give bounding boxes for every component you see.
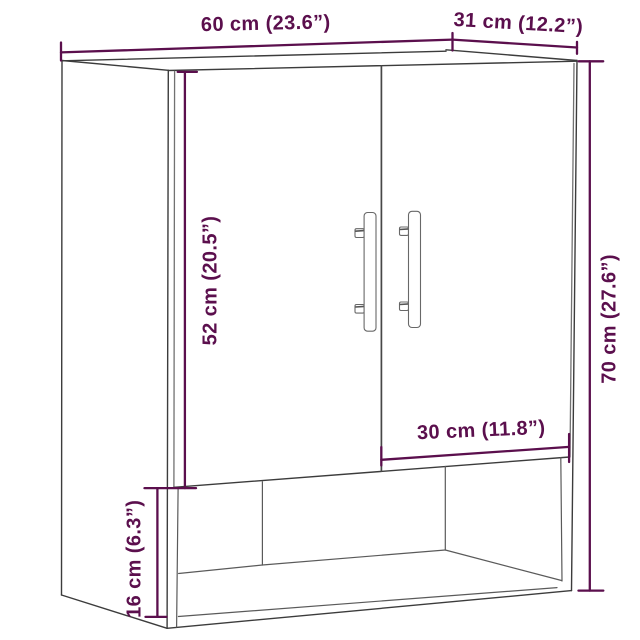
svg-text:60 cm (23.6”): 60 cm (23.6”) [201, 11, 331, 36]
svg-text:31 cm (12.2”): 31 cm (12.2”) [453, 9, 584, 38]
svg-text:16 cm (6.3”): 16 cm (6.3”) [124, 500, 146, 618]
svg-text:70 cm (27.6”): 70 cm (27.6”) [598, 254, 620, 384]
svg-text:30 cm (11.8”): 30 cm (11.8”) [417, 417, 546, 445]
svg-text:52 cm (20.5”): 52 cm (20.5”) [199, 216, 221, 346]
